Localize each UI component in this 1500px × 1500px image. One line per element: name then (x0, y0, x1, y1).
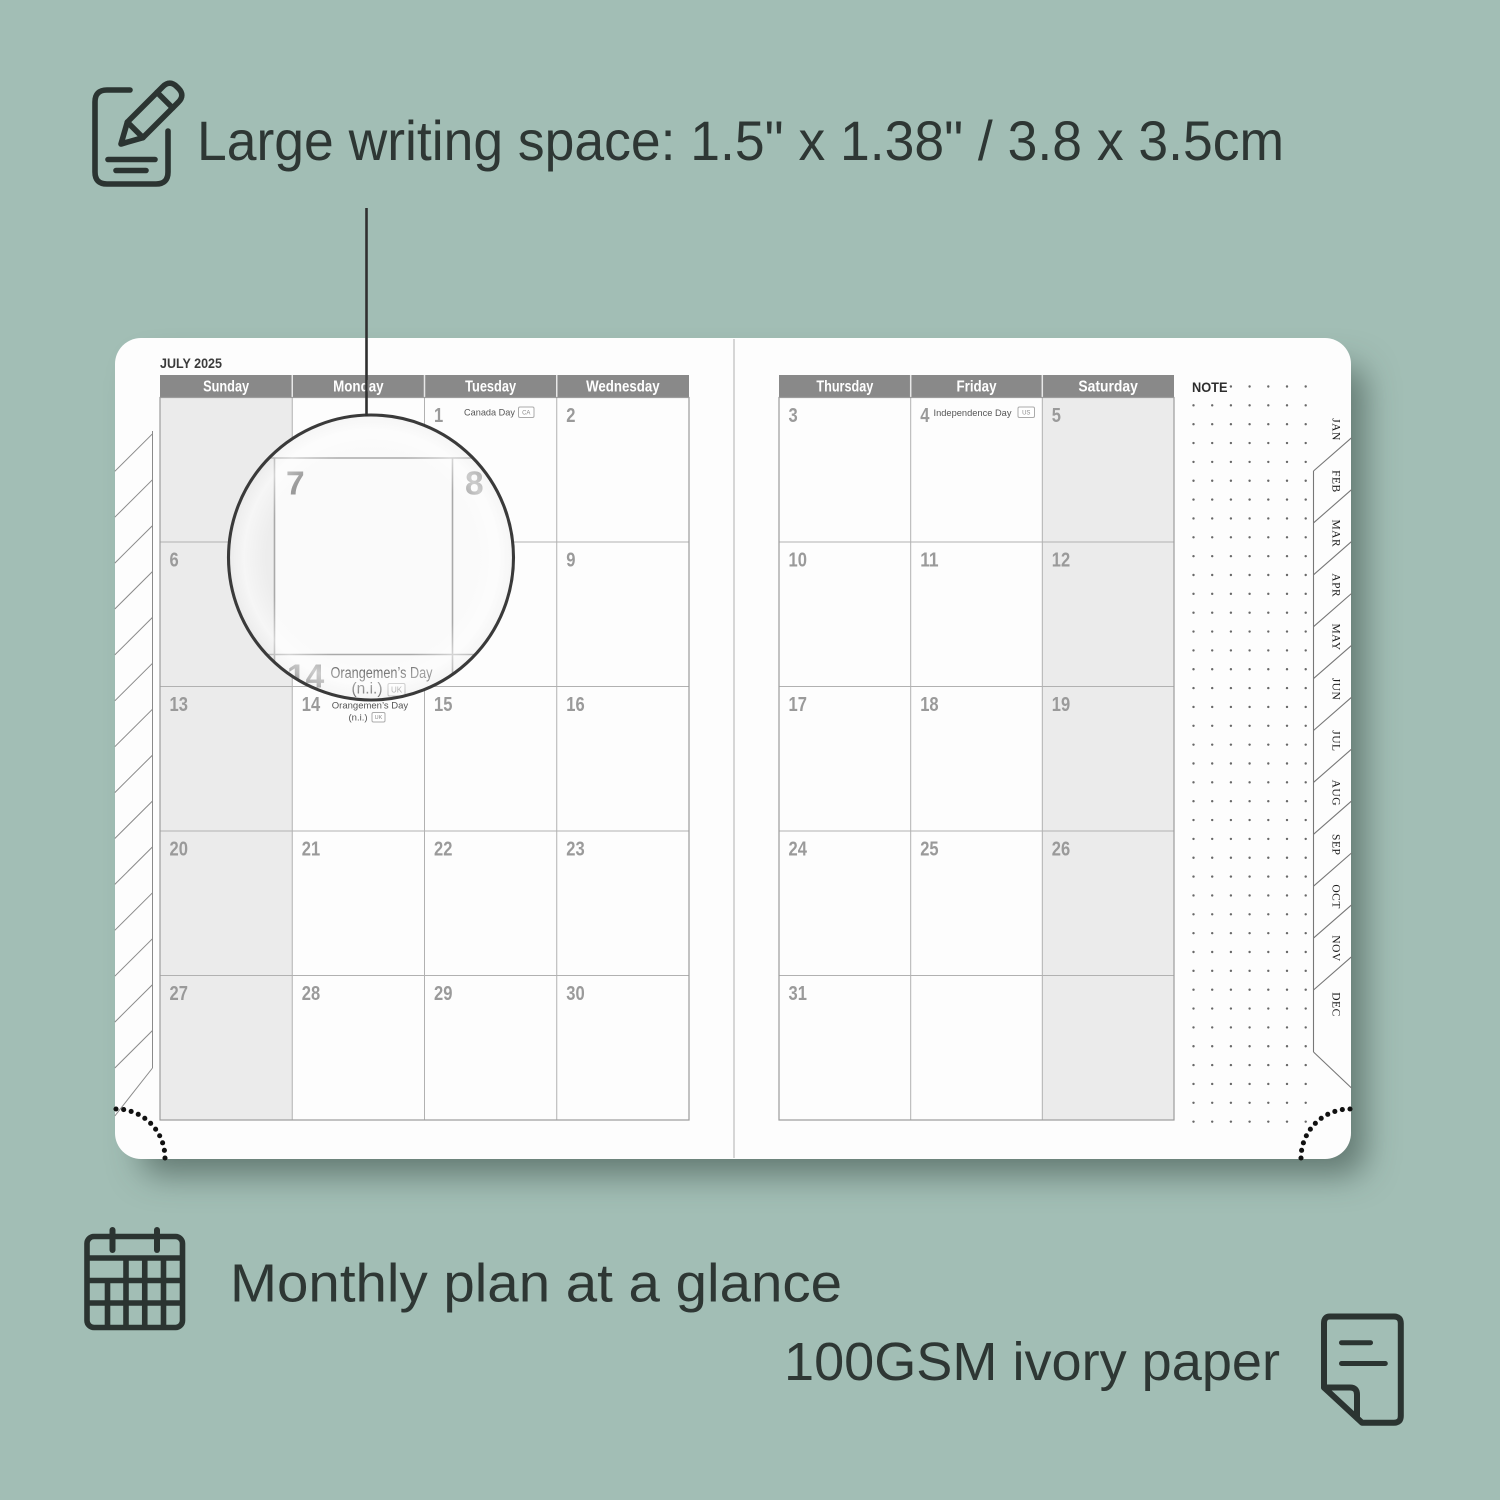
svg-text:21: 21 (302, 838, 320, 861)
svg-text:23: 23 (566, 838, 584, 861)
svg-text:AUG: AUG (1330, 780, 1342, 806)
svg-text:13: 13 (170, 693, 188, 716)
svg-text:29: 29 (434, 982, 452, 1005)
svg-text:UK: UK (375, 715, 383, 721)
svg-text:6: 6 (170, 549, 179, 572)
svg-text:OCT: OCT (1330, 884, 1342, 909)
svg-text:JUN: JUN (1330, 678, 1342, 701)
svg-text:22: 22 (434, 838, 452, 861)
svg-text:4: 4 (920, 404, 930, 427)
svg-text:NOV: NOV (1330, 935, 1342, 962)
svg-text:5: 5 (1052, 404, 1061, 427)
svg-text:27: 27 (170, 982, 188, 1005)
svg-text:2: 2 (566, 404, 575, 427)
svg-text:(n.i.): (n.i.) (349, 713, 368, 724)
svg-text:US: US (1022, 410, 1030, 416)
svg-text:25: 25 (920, 838, 938, 861)
svg-text:100GSM ivory paper: 100GSM ivory paper (784, 1332, 1280, 1392)
svg-text:Monthly plan at a glance: Monthly plan at a glance (230, 1254, 842, 1314)
svg-text:Friday: Friday (957, 379, 997, 396)
svg-text:10: 10 (789, 549, 807, 572)
svg-text:12: 12 (1052, 549, 1070, 572)
svg-text:17: 17 (789, 693, 807, 716)
svg-text:19: 19 (1052, 693, 1070, 716)
svg-text:JAN: JAN (1330, 418, 1342, 441)
svg-text:Monday: Monday (333, 379, 384, 396)
svg-text:15: 15 (434, 693, 452, 716)
svg-text:DEC: DEC (1330, 992, 1342, 1017)
svg-text:Canada Day: Canada Day (464, 408, 515, 419)
svg-text:APR: APR (1330, 573, 1342, 597)
svg-text:31: 31 (789, 982, 807, 1005)
svg-text:28: 28 (302, 982, 320, 1005)
svg-text:9: 9 (566, 549, 575, 572)
svg-text:26: 26 (1052, 838, 1070, 861)
svg-text:JULY 2025: JULY 2025 (160, 355, 222, 371)
svg-text:14: 14 (302, 693, 321, 716)
svg-text:JUL: JUL (1330, 730, 1342, 751)
svg-text:Tuesday: Tuesday (465, 379, 516, 396)
svg-text:Sunday: Sunday (203, 379, 249, 396)
svg-text:20: 20 (170, 838, 188, 861)
svg-text:FEB: FEB (1330, 470, 1342, 493)
svg-text:SEP: SEP (1330, 834, 1342, 855)
svg-text:30: 30 (566, 982, 584, 1005)
svg-text:Independence Day: Independence Day (934, 408, 1012, 419)
svg-text:3: 3 (789, 404, 798, 427)
svg-text:CA: CA (522, 410, 530, 416)
svg-text:11: 11 (920, 549, 938, 572)
svg-text:MAR: MAR (1330, 519, 1342, 547)
svg-text:Saturday: Saturday (1078, 379, 1138, 396)
svg-text:16: 16 (566, 693, 584, 716)
svg-text:MAY: MAY (1330, 623, 1342, 650)
svg-text:24: 24 (789, 838, 808, 861)
svg-text:Wednesday: Wednesday (586, 379, 660, 396)
svg-text:Orangemen’s Day: Orangemen’s Day (332, 701, 409, 712)
svg-text:Large writing space: 1.5" x 1.: Large writing space: 1.5" x 1.38" / 3.8 … (197, 110, 1284, 172)
svg-text:18: 18 (920, 693, 938, 716)
svg-text:1: 1 (434, 404, 443, 427)
svg-text:Thursday: Thursday (816, 379, 873, 396)
svg-text:NOTE: NOTE (1192, 379, 1228, 395)
